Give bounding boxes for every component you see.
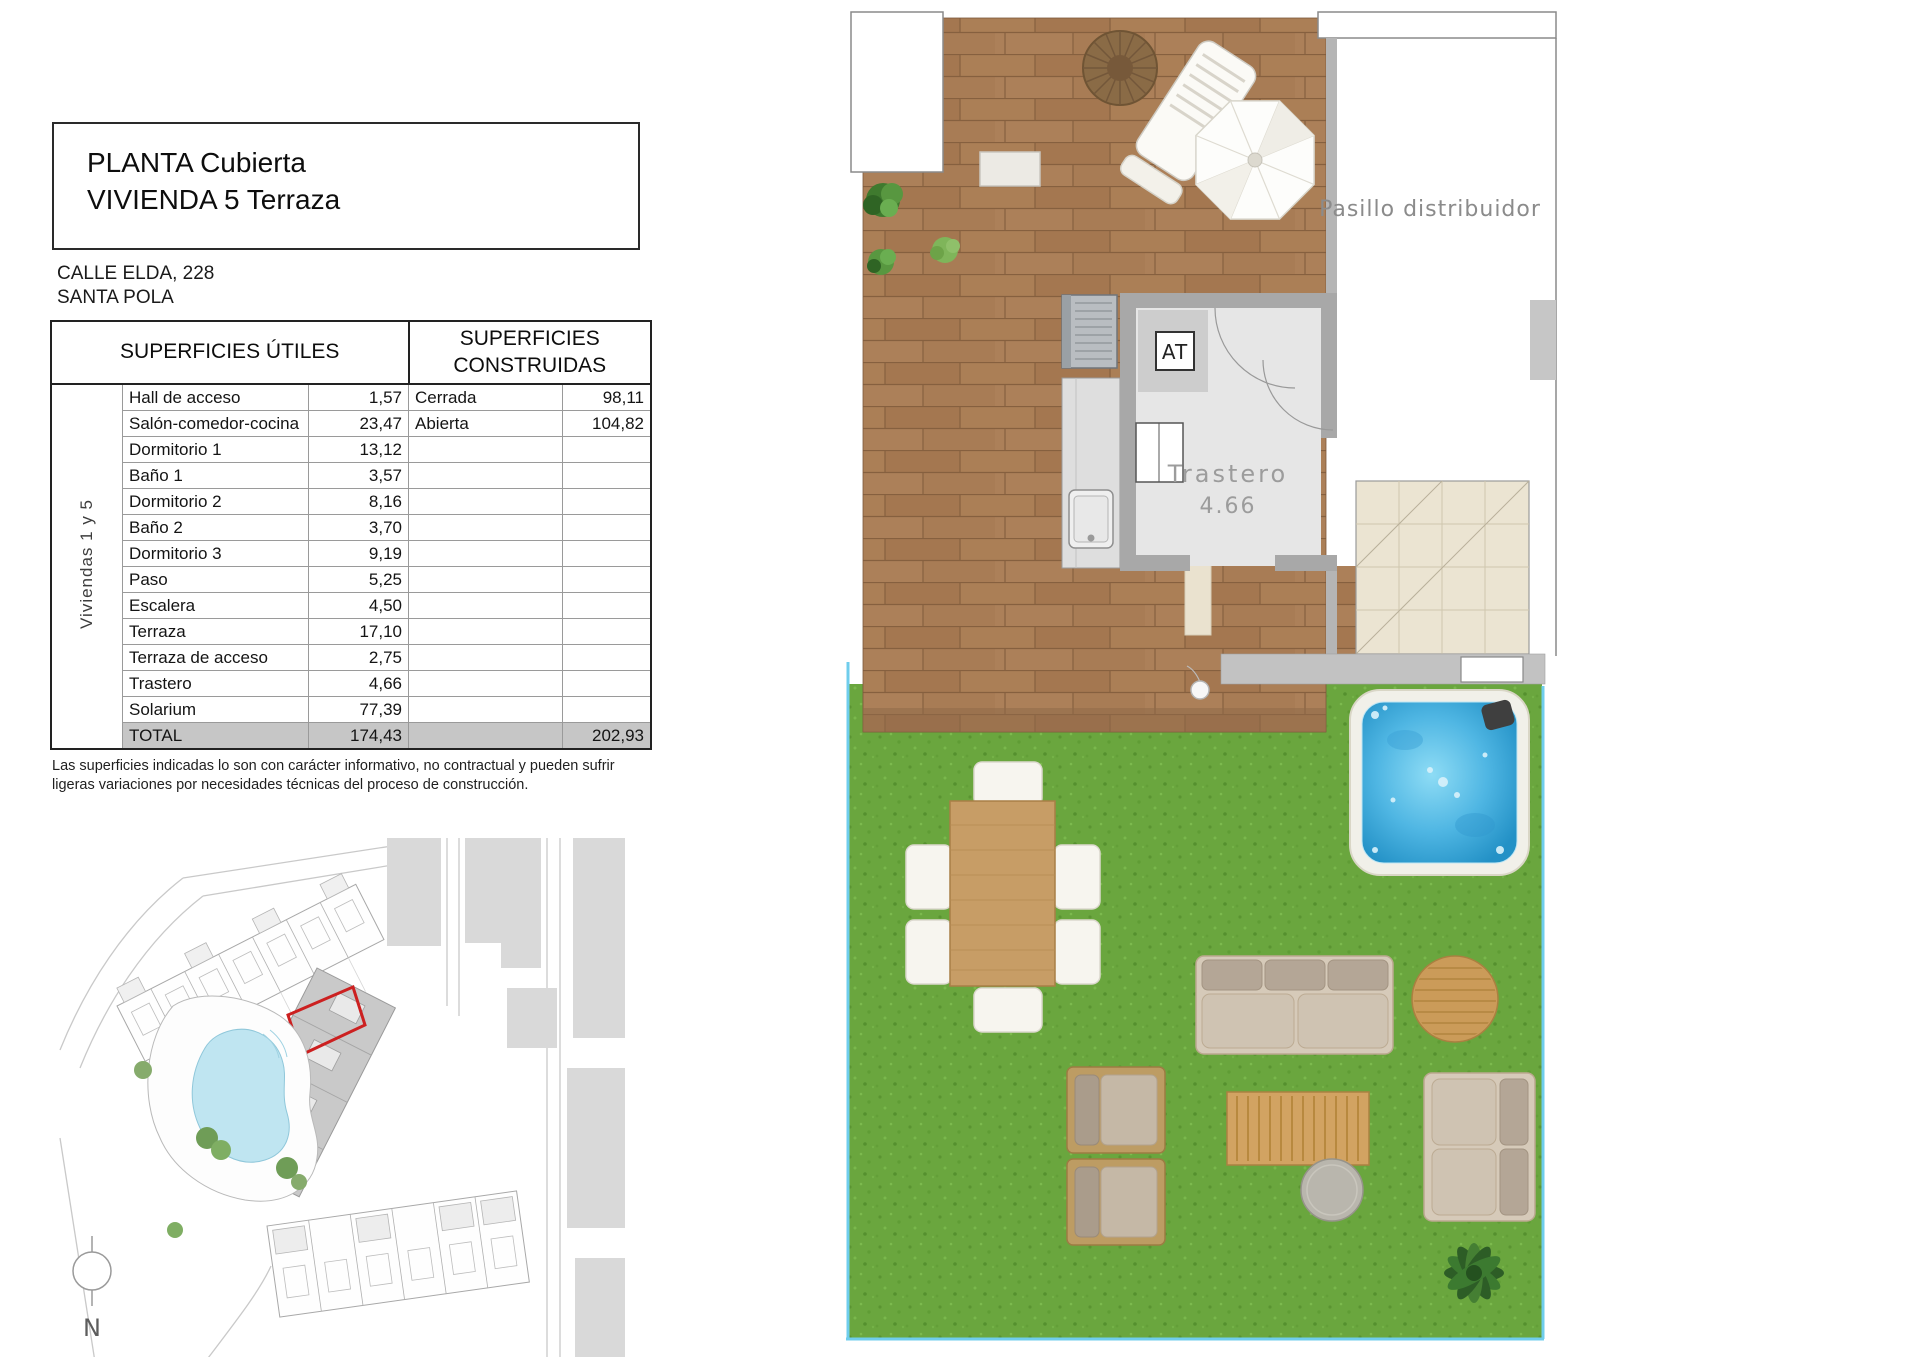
room-value-cell: 1,57 bbox=[309, 384, 409, 411]
constructed-name-cell bbox=[409, 567, 563, 593]
constructed-name-cell bbox=[409, 463, 563, 489]
room-value-cell: 13,12 bbox=[309, 437, 409, 463]
room-value-cell: 8,16 bbox=[309, 489, 409, 515]
header-superficies-utiles: SUPERFICIES ÚTILES bbox=[51, 321, 409, 384]
room-name-cell: Escalera bbox=[123, 593, 309, 619]
round-deck-table bbox=[1410, 956, 1500, 1042]
address-block: CALLE ELDA, 228 SANTA POLA bbox=[57, 262, 214, 310]
area-row: Trastero4,66 bbox=[51, 671, 651, 697]
constructed-value-cell bbox=[563, 697, 652, 723]
room-name-cell: Dormitorio 2 bbox=[123, 489, 309, 515]
wicker-table bbox=[1083, 31, 1157, 105]
constructed-name-cell: Abierta bbox=[409, 411, 563, 437]
armchair-2 bbox=[1067, 1159, 1165, 1245]
doormat bbox=[980, 152, 1040, 186]
room-name-cell: TOTAL bbox=[123, 723, 309, 750]
coffee-table bbox=[1227, 1092, 1369, 1165]
area-row: Dormitorio 39,19 bbox=[51, 541, 651, 567]
trastero-room: AT Trastero 4.66 bbox=[1120, 293, 1337, 571]
area-row: TOTAL174,43202,93 bbox=[51, 723, 651, 750]
constructed-name-cell bbox=[409, 437, 563, 463]
constructed-name-cell bbox=[409, 541, 563, 567]
constructed-value-cell bbox=[563, 515, 652, 541]
room-value-cell: 9,19 bbox=[309, 541, 409, 567]
constructed-value-cell: 98,11 bbox=[563, 384, 652, 411]
plan-sheet: PLANTA Cubierta VIVIENDA 5 Terraza CALLE… bbox=[0, 0, 1920, 1357]
room-value-cell: 23,47 bbox=[309, 411, 409, 437]
corridor-label: Pasillo distribuidor bbox=[1319, 197, 1541, 222]
area-row: Terraza de acceso2,75 bbox=[51, 645, 651, 671]
room-value-cell: 17,10 bbox=[309, 619, 409, 645]
lower-wall bbox=[1221, 654, 1545, 684]
constructed-name-cell bbox=[409, 723, 563, 750]
room-value-cell: 4,66 bbox=[309, 671, 409, 697]
at-label: AT bbox=[1162, 340, 1188, 364]
constructed-name-cell bbox=[409, 489, 563, 515]
area-row: Baño 23,70 bbox=[51, 515, 651, 541]
constructed-value-cell: 202,93 bbox=[563, 723, 652, 750]
room-value-cell: 3,57 bbox=[309, 463, 409, 489]
area-row: Terraza17,10 bbox=[51, 619, 651, 645]
constructed-value-cell bbox=[563, 437, 652, 463]
disclaimer-text: Las superficies indicadas lo son con car… bbox=[52, 757, 652, 795]
area-row: Escalera4,50 bbox=[51, 593, 651, 619]
access-terrace bbox=[851, 12, 943, 172]
header-superficies-construidas: SUPERFICIES CONSTRUIDAS bbox=[409, 321, 652, 384]
area-row: Viviendas 1 y 5Hall de acceso1,57Cerrada… bbox=[51, 384, 651, 411]
door-rug bbox=[1185, 563, 1211, 635]
area-row: Dormitorio 28,16 bbox=[51, 489, 651, 515]
area-row: Salón-comedor-cocina23,47Abierta104,82 bbox=[51, 411, 651, 437]
room-name-cell: Baño 1 bbox=[123, 463, 309, 489]
site-plan: N bbox=[55, 838, 625, 1357]
ac-unit bbox=[1062, 295, 1117, 368]
constructed-name-cell bbox=[409, 697, 563, 723]
constructed-value-cell bbox=[563, 567, 652, 593]
areas-table-body: Viviendas 1 y 5Hall de acceso1,57Cerrada… bbox=[51, 384, 651, 749]
room-name-cell: Terraza bbox=[123, 619, 309, 645]
room-value-cell: 77,39 bbox=[309, 697, 409, 723]
plan-title-line1: PLANTA Cubierta bbox=[87, 144, 638, 181]
stone-table bbox=[1301, 1159, 1363, 1221]
room-name-cell: Terraza de acceso bbox=[123, 645, 309, 671]
area-row: Paso5,25 bbox=[51, 567, 651, 593]
constructed-name-cell bbox=[409, 645, 563, 671]
room-value-cell: 4,50 bbox=[309, 593, 409, 619]
area-row: Baño 13,57 bbox=[51, 463, 651, 489]
constructed-name-cell: Cerrada bbox=[409, 384, 563, 411]
constructed-value-cell bbox=[563, 541, 652, 567]
trastero-area-value: 4.66 bbox=[1200, 494, 1257, 519]
room-name-cell: Trastero bbox=[123, 671, 309, 697]
constructed-value-cell bbox=[563, 593, 652, 619]
room-value-cell: 2,75 bbox=[309, 645, 409, 671]
jacuzzi bbox=[1350, 690, 1529, 875]
north-label: N bbox=[83, 1314, 101, 1342]
garden-sofa bbox=[1196, 956, 1393, 1054]
dining-table bbox=[950, 801, 1055, 986]
area-row: Dormitorio 113,12 bbox=[51, 437, 651, 463]
constructed-value-cell: 104,82 bbox=[563, 411, 652, 437]
parasol bbox=[1196, 101, 1314, 219]
constructed-value-cell bbox=[563, 671, 652, 697]
outdoor-kitchen-counter bbox=[1062, 378, 1120, 568]
room-name-cell: Solarium bbox=[123, 697, 309, 723]
room-value-cell: 5,25 bbox=[309, 567, 409, 593]
plan-title-line2: VIVIENDA 5 Terraza bbox=[87, 181, 638, 218]
constructed-value-cell bbox=[563, 619, 652, 645]
constructed-value-cell bbox=[563, 463, 652, 489]
room-name-cell: Dormitorio 3 bbox=[123, 541, 309, 567]
side-label-cell: Viviendas 1 y 5 bbox=[51, 384, 123, 749]
constructed-name-cell bbox=[409, 671, 563, 697]
trastero-label: Trastero bbox=[1167, 460, 1288, 488]
constructed-name-cell bbox=[409, 619, 563, 645]
room-name-cell: Baño 2 bbox=[123, 515, 309, 541]
area-row: Solarium77,39 bbox=[51, 697, 651, 723]
room-name-cell: Hall de acceso bbox=[123, 384, 309, 411]
room-name-cell: Salón-comedor-cocina bbox=[123, 411, 309, 437]
armchair-1 bbox=[1067, 1067, 1165, 1153]
constructed-name-cell bbox=[409, 515, 563, 541]
areas-table: SUPERFICIES ÚTILES SUPERFICIES CONSTRUID… bbox=[50, 320, 652, 750]
address-line1: CALLE ELDA, 228 bbox=[57, 262, 214, 286]
constructed-name-cell bbox=[409, 593, 563, 619]
room-value-cell: 3,70 bbox=[309, 515, 409, 541]
room-value-cell: 174,43 bbox=[309, 723, 409, 750]
garden-sofa-2 bbox=[1424, 1073, 1535, 1221]
room-name-cell: Dormitorio 1 bbox=[123, 437, 309, 463]
constructed-value-cell bbox=[563, 645, 652, 671]
room-name-cell: Paso bbox=[123, 567, 309, 593]
floor-plan: Pasillo distribuidor bbox=[845, 10, 1565, 1350]
stairs bbox=[1356, 481, 1529, 654]
address-line2: SANTA POLA bbox=[57, 286, 214, 310]
constructed-value-cell bbox=[563, 489, 652, 515]
title-box: PLANTA Cubierta VIVIENDA 5 Terraza bbox=[52, 122, 640, 250]
